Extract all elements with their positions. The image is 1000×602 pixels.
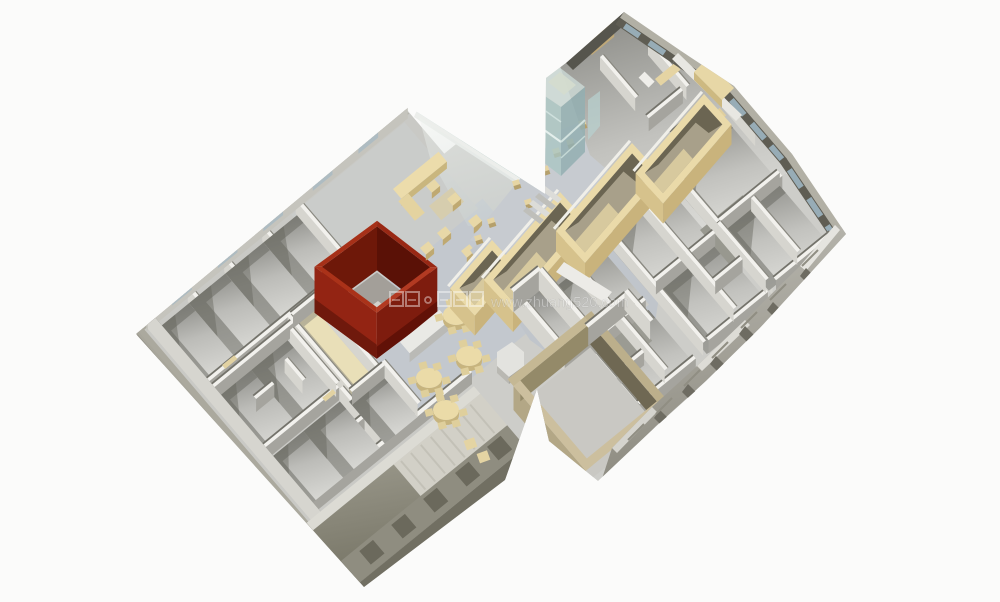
svg-text:www.zhuang520.com: www.zhuang520.com — [490, 295, 629, 311]
